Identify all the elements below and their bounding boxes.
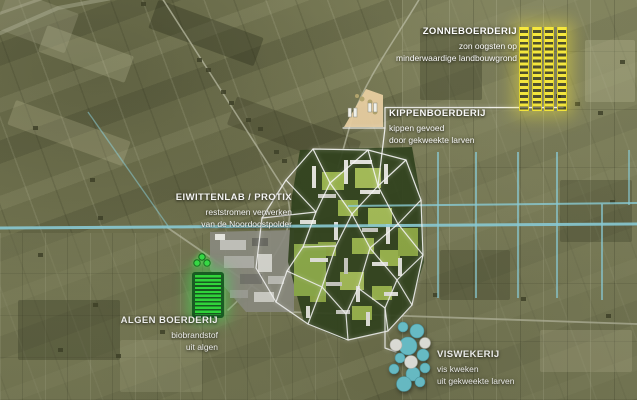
chicken-farm-plot[interactable]: [344, 89, 383, 127]
label-eiwittenlab[interactable]: EIWITTENLAB / PROTIX reststromen verwerk…: [176, 192, 292, 231]
solar-panel-column: [544, 27, 554, 111]
poi-subtitle-line: kippen gevoed: [389, 122, 486, 135]
poi-subtitle-line: biobrandstof: [121, 329, 218, 342]
poi-subtitle-line: reststromen verwerken: [176, 206, 292, 219]
poi-title: KIPPENBOERDERIJ: [389, 108, 486, 121]
poi-title: EIWITTENLAB / PROTIX: [176, 192, 292, 205]
poi-subtitle-line: van de Noordoostpolder: [176, 218, 292, 231]
fish-ponds-icon[interactable]: [389, 322, 431, 392]
solar-panel-column: [557, 27, 567, 111]
solar-panel-column: [519, 27, 529, 111]
algae-field-icon[interactable]: [192, 272, 224, 318]
poi-subtitle-line: uit algen: [121, 341, 218, 354]
poi-subtitle-line: zon oogsten op: [396, 40, 517, 53]
label-viswekerij[interactable]: VISWEKERIJ vis kweken uit gekweekte larv…: [437, 349, 515, 388]
solar-panels-icon[interactable]: [519, 27, 567, 111]
poi-subtitle-line: minderwaardige landbouwgrond: [396, 52, 517, 65]
poi-title: ALGEN BOERDERIJ: [121, 315, 218, 328]
poi-title: ZONNEBOERDERIJ: [396, 26, 517, 39]
poi-subtitle-line: vis kweken: [437, 363, 515, 376]
label-algenboerderij[interactable]: ALGEN BOERDERIJ biobrandstof uit algen: [121, 315, 218, 354]
poi-subtitle-line: uit gekweekte larven: [437, 375, 515, 388]
label-kippenboerderij[interactable]: KIPPENBOERDERIJ kippen gevoed door gekwe…: [389, 108, 486, 147]
poi-title: VISWEKERIJ: [437, 349, 515, 362]
label-zonneboerderij[interactable]: ZONNEBOERDERIJ zon oogsten op minderwaar…: [396, 26, 517, 65]
solar-panel-column: [532, 27, 542, 111]
poi-subtitle-line: door gekweekte larven: [389, 134, 486, 147]
aerial-map: ZONNEBOERDERIJ zon oogsten op minderwaar…: [0, 0, 637, 400]
